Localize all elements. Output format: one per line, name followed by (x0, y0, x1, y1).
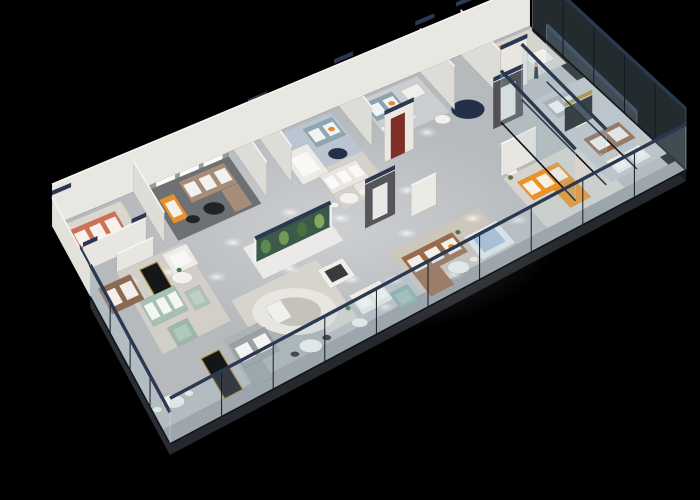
aquarium-plant-2 (279, 231, 289, 245)
spotlight-glow-2 (206, 271, 228, 282)
table-black-1 (203, 202, 224, 214)
plant-4 (455, 230, 460, 234)
spotlight-glow-13 (462, 213, 484, 224)
table-black-2 (186, 215, 200, 223)
dining-set-1-chair-1 (331, 203, 338, 208)
table-navy-round (328, 148, 347, 159)
aquarium-plant-1 (261, 240, 271, 254)
plant-3 (508, 175, 513, 179)
dining-set-3 (435, 115, 451, 124)
aquarium-plant-4 (314, 214, 324, 228)
table-white-flowers (172, 272, 193, 284)
sofa-slate-accent-pillow (388, 101, 395, 105)
showroom-render: 3D isometric rendering of a furniture sh… (0, 0, 700, 500)
dining-set-3 (435, 115, 451, 124)
maroon-j-ribbon (391, 112, 405, 159)
spotlight-glow-11 (396, 228, 418, 239)
table-black-1 (203, 202, 224, 214)
aquarium-plant-3 (297, 222, 307, 236)
cap-5 (415, 13, 434, 26)
spotlight-glow-18 (416, 127, 438, 138)
plant-1 (177, 268, 182, 272)
spotlight-glow-6 (330, 213, 352, 224)
sofa-teal-accent-pillow (328, 127, 335, 131)
table-black-2 (186, 215, 200, 223)
platform-navy-round (451, 100, 484, 119)
dining-set-1 (339, 193, 359, 204)
floorplan-svg: 3D isometric rendering of a furniture sh… (0, 0, 700, 500)
platform-navy-round (451, 100, 484, 119)
scene-root (52, 0, 686, 455)
table-navy-round (328, 148, 347, 159)
cap-6 (456, 0, 475, 7)
table-white-flowers (172, 272, 193, 284)
spotlight-glow-3 (222, 237, 244, 248)
